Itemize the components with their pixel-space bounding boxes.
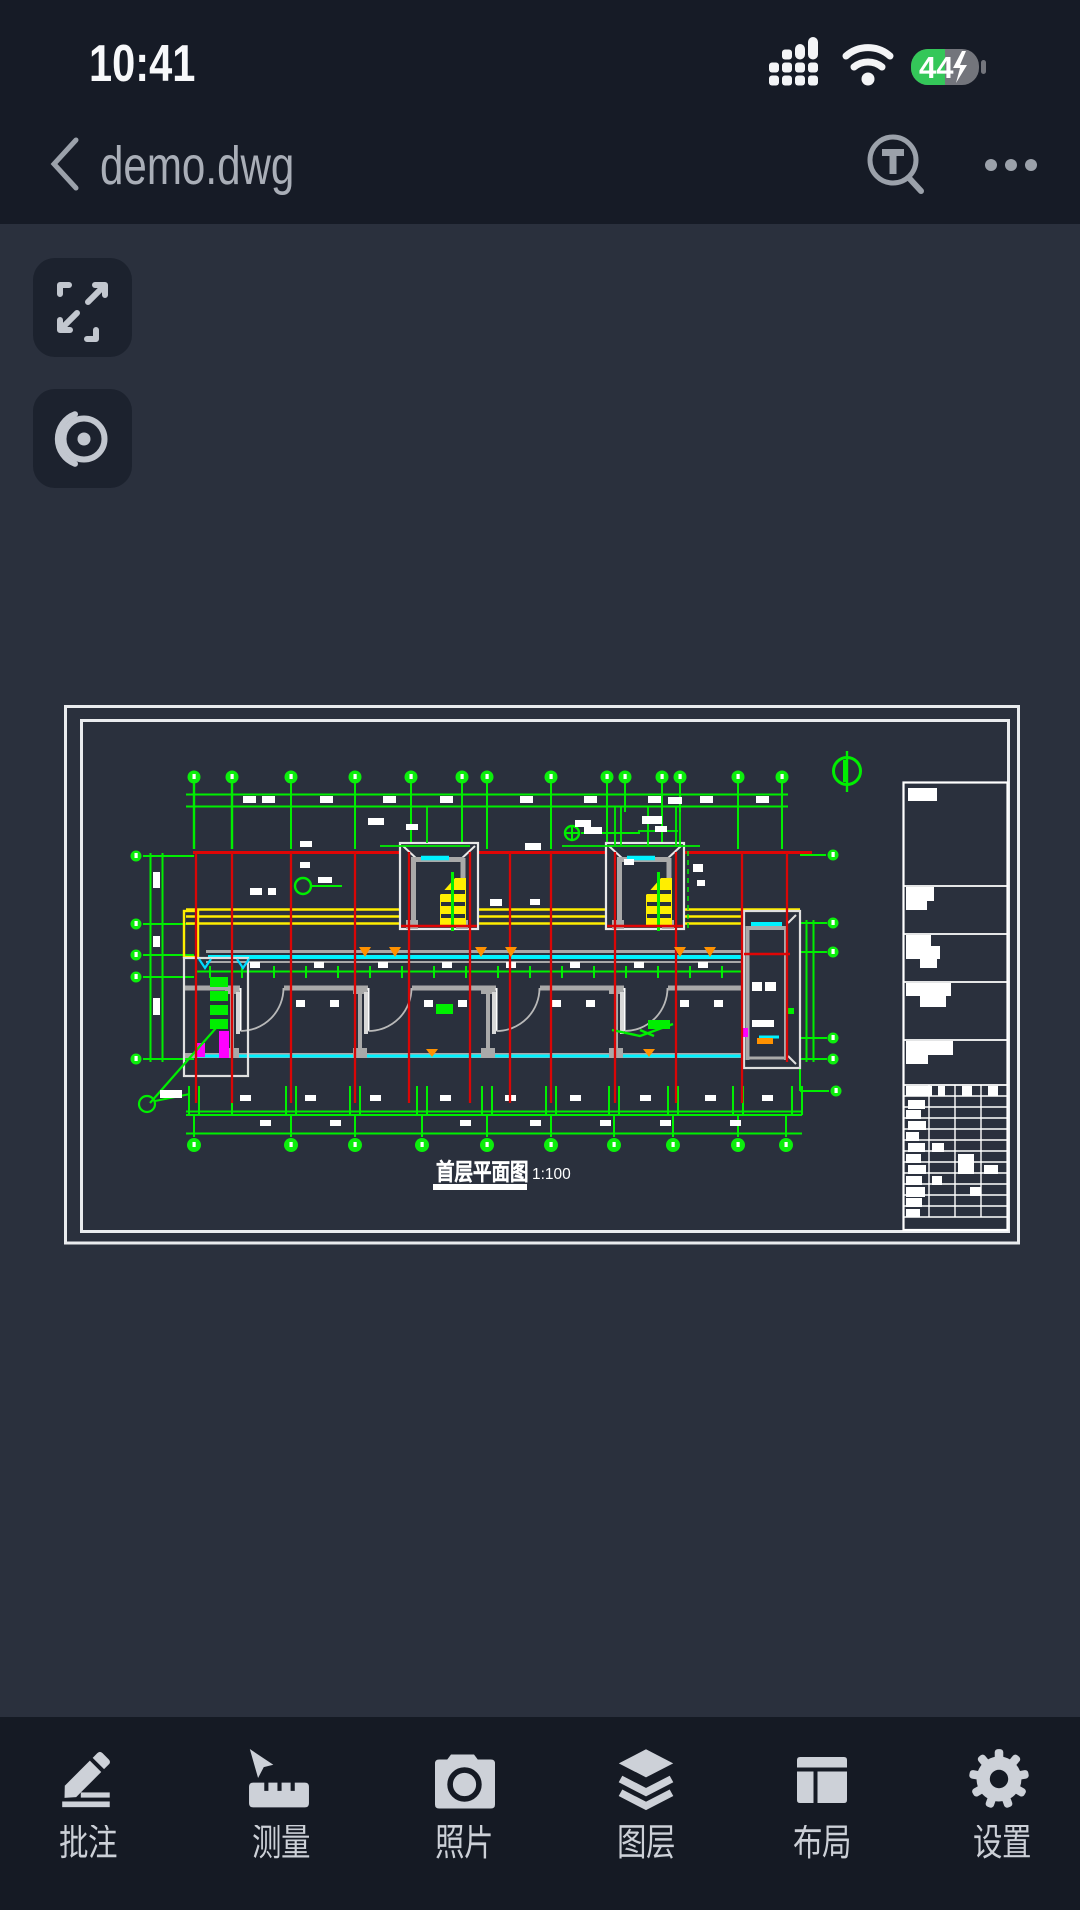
svg-text:1:100: 1:100 bbox=[532, 1166, 571, 1183]
